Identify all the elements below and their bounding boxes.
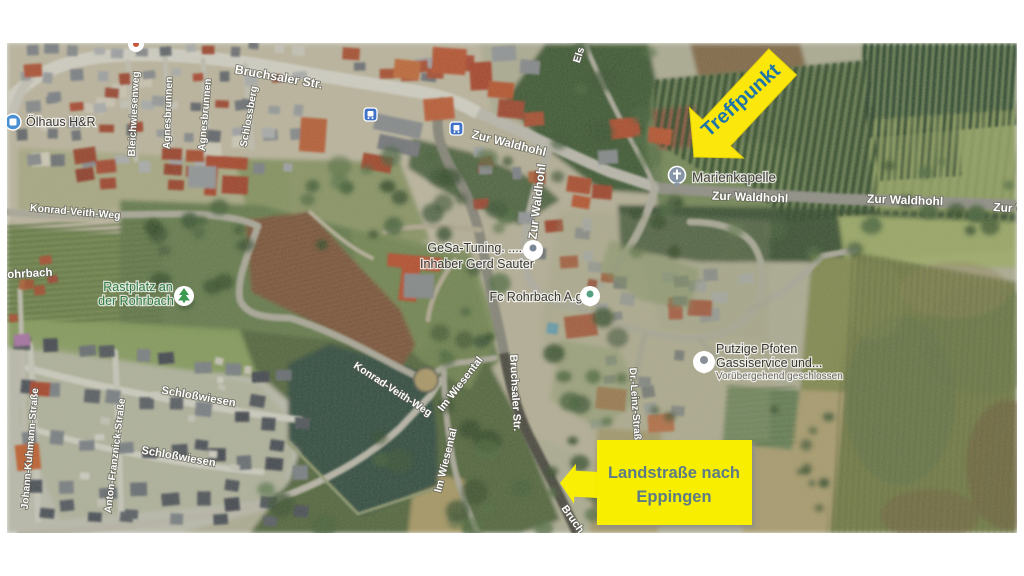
svg-text:Zur Waldhohl: Zur Waldhohl	[867, 192, 944, 209]
svg-text:Inhaber Gerd Sauter: Inhaber Gerd Sauter	[420, 257, 534, 271]
svg-text:Landstraße nach: Landstraße nach	[608, 464, 740, 482]
svg-text:Vorübergehend geschlossen: Vorübergehend geschlossen	[716, 371, 843, 382]
svg-text:GeSa-Tuning. .......: GeSa-Tuning. .......	[427, 241, 532, 255]
svg-text:ohrbach: ohrbach	[7, 267, 53, 281]
svg-text:Putzige Pfoten: Putzige Pfoten	[716, 342, 797, 356]
svg-text:der Rohrbach: der Rohrbach	[98, 294, 174, 308]
svg-text:Gassiservice und...: Gassiservice und...	[716, 356, 822, 370]
svg-text:Fc Rohrbach A.g: Fc Rohrbach A.g	[489, 290, 582, 304]
svg-text:Marienkapelle: Marienkapelle	[692, 170, 776, 185]
svg-text:Rastplatz an: Rastplatz an	[103, 280, 173, 294]
svg-text:Ölhaus H&R: Ölhaus H&R	[26, 115, 95, 129]
svg-text:Eppingen: Eppingen	[636, 488, 711, 506]
svg-text:Zur Waldhohl: Zur Waldhohl	[712, 189, 789, 206]
